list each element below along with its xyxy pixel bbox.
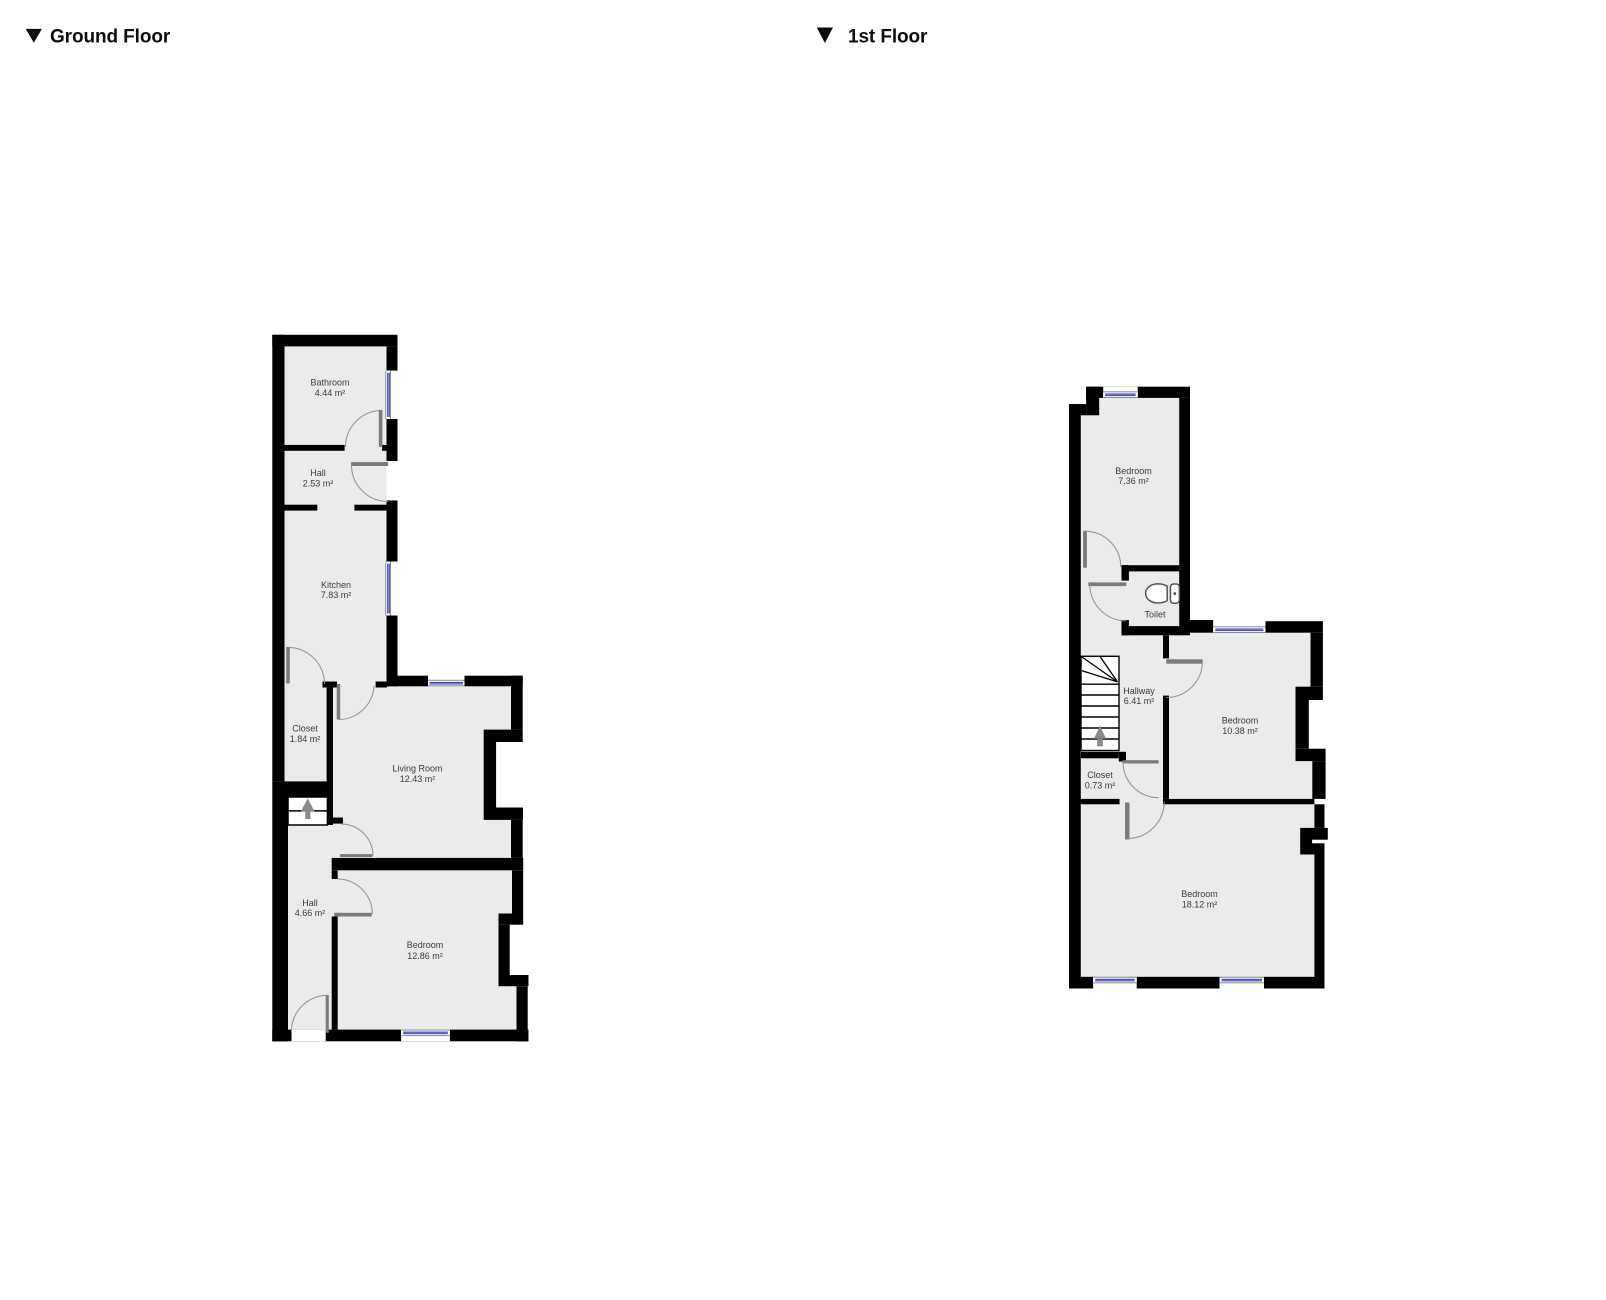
svg-text:1.84 m²: 1.84 m² bbox=[290, 734, 321, 744]
svg-text:Bedroom: Bedroom bbox=[1222, 716, 1259, 726]
svg-text:18.12 m²: 18.12 m² bbox=[1182, 900, 1218, 910]
svg-text:Kitchen: Kitchen bbox=[321, 580, 351, 590]
svg-text:Bedroom: Bedroom bbox=[1181, 889, 1218, 899]
svg-text:2.53 m²: 2.53 m² bbox=[303, 478, 334, 488]
svg-text:Toilet: Toilet bbox=[1144, 610, 1166, 620]
svg-text:6.41 m²: 6.41 m² bbox=[1124, 696, 1155, 706]
svg-text:Hall: Hall bbox=[302, 898, 318, 908]
svg-text:12.86 m²: 12.86 m² bbox=[407, 951, 443, 961]
svg-text:4.66 m²: 4.66 m² bbox=[295, 908, 326, 918]
svg-text:Hall: Hall bbox=[310, 468, 326, 478]
svg-text:Closet: Closet bbox=[1087, 770, 1113, 780]
svg-text:0.73 m²: 0.73 m² bbox=[1085, 781, 1116, 791]
svg-text:12.43 m²: 12.43 m² bbox=[400, 774, 436, 784]
svg-text:Bathroom: Bathroom bbox=[310, 378, 349, 388]
svg-text:Ground Floor: Ground Floor bbox=[50, 27, 171, 48]
svg-text:10.38 m²: 10.38 m² bbox=[1222, 726, 1258, 736]
svg-text:Living Room: Living Room bbox=[392, 764, 442, 774]
svg-text:7.36 m²: 7.36 m² bbox=[1118, 476, 1149, 486]
svg-text:Hallway: Hallway bbox=[1123, 686, 1155, 696]
svg-text:4.44 m²: 4.44 m² bbox=[315, 388, 346, 398]
svg-text:1st Floor: 1st Floor bbox=[848, 27, 928, 48]
svg-text:Bedroom: Bedroom bbox=[407, 940, 444, 950]
svg-text:Bedroom: Bedroom bbox=[1115, 466, 1152, 476]
svg-text:Closet: Closet bbox=[292, 724, 318, 734]
svg-text:7.83 m²: 7.83 m² bbox=[321, 590, 352, 600]
